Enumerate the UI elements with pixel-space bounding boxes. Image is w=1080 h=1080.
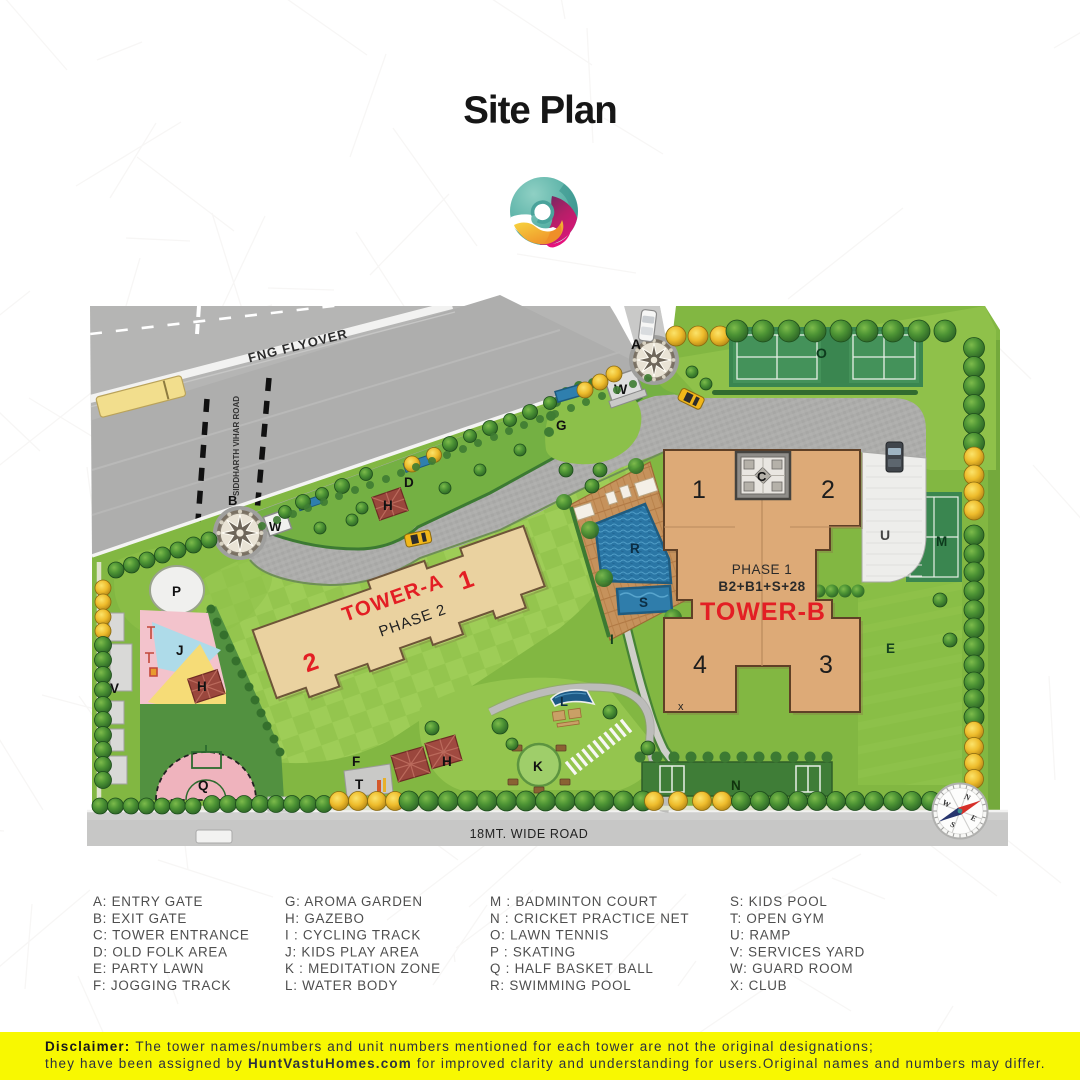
svg-text:R: R [630,541,640,556]
svg-text:F: JOGGING TRACK: F: JOGGING TRACK [93,978,231,993]
svg-text:D: OLD FOLK AREA: D: OLD FOLK AREA [93,944,228,959]
svg-text:C: C [757,469,767,484]
svg-text:M : BADMINTON COURT: M : BADMINTON COURT [490,894,658,909]
svg-text:V: SERVICES YARD: V: SERVICES YARD [730,944,865,959]
svg-text:M: M [936,534,947,549]
svg-text:3: 3 [819,651,833,679]
svg-text:S: S [639,595,648,610]
svg-text:PHASE 1: PHASE 1 [732,562,793,577]
svg-text:J: KIDS PLAY AREA: J: KIDS PLAY AREA [285,944,419,959]
svg-text:N : CRICKET PRACTICE NET: N : CRICKET PRACTICE NET [490,911,689,926]
svg-text:I: I [610,632,614,647]
svg-text:x: x [678,701,684,713]
svg-text:SIDDHARTH VIHAR ROAD: SIDDHARTH VIHAR ROAD [232,396,241,496]
svg-text:N: N [731,778,741,793]
svg-text:F: F [352,754,360,769]
svg-text:B: EXIT GATE: B: EXIT GATE [93,911,187,926]
svg-text:L: WATER BODY: L: WATER BODY [285,978,398,993]
svg-text:D: D [404,475,414,490]
svg-text:G: G [556,418,567,433]
svg-text:Q : HALF BASKET BALL: Q : HALF BASKET BALL [490,961,654,976]
svg-text:U: U [880,527,890,543]
svg-text:Disclaimer: The tower names/nu: Disclaimer: The tower names/numbers and … [45,1039,874,1054]
svg-text:H: H [197,679,207,694]
svg-text:E: E [886,641,895,656]
svg-text:2: 2 [821,476,835,504]
svg-text:H: GAZEBO: H: GAZEBO [285,911,365,926]
svg-text:O: LAWN TENNIS: O: LAWN TENNIS [490,928,609,943]
svg-text:L: L [560,694,568,709]
svg-text:B2+B1+S+28: B2+B1+S+28 [718,579,805,594]
svg-text:K : MEDITATION ZONE: K : MEDITATION ZONE [285,961,441,976]
svg-text:W: GUARD ROOM: W: GUARD ROOM [730,961,853,976]
svg-text:H: H [442,754,452,769]
svg-text:T: T [355,777,364,792]
svg-text:U: RAMP: U: RAMP [730,928,791,943]
svg-text:G: AROMA GARDEN: G: AROMA GARDEN [285,894,423,909]
svg-text:J: J [176,643,184,658]
svg-text:E: PARTY LAWN: E: PARTY LAWN [93,961,204,976]
svg-text:K: K [533,759,543,774]
svg-text:C: TOWER ENTRANCE: C: TOWER ENTRANCE [93,928,250,943]
svg-text:R: SWIMMING POOL: R: SWIMMING POOL [490,978,631,993]
svg-text:they have been assigned by Hun: they have been assigned by HuntVastuHome… [45,1056,1046,1071]
svg-text:TOWER-B: TOWER-B [700,598,826,626]
svg-text:H: H [383,498,393,513]
svg-text:Q: Q [198,778,209,793]
svg-text:O: O [816,345,827,361]
svg-text:X: CLUB: X: CLUB [730,978,787,993]
svg-text:T: OPEN GYM: T: OPEN GYM [730,911,825,926]
svg-text:P : SKATING: P : SKATING [490,944,576,959]
svg-text:I : CYCLING TRACK: I : CYCLING TRACK [285,928,421,943]
svg-text:4: 4 [693,651,707,679]
svg-text:1: 1 [692,476,706,504]
svg-text:18MT. WIDE ROAD: 18MT. WIDE ROAD [470,827,589,841]
svg-text:S: KIDS POOL: S: KIDS POOL [730,894,828,909]
svg-text:A: ENTRY GATE: A: ENTRY GATE [93,894,203,909]
svg-text:P: P [172,584,181,599]
svg-text:Site Plan: Site Plan [463,89,617,132]
